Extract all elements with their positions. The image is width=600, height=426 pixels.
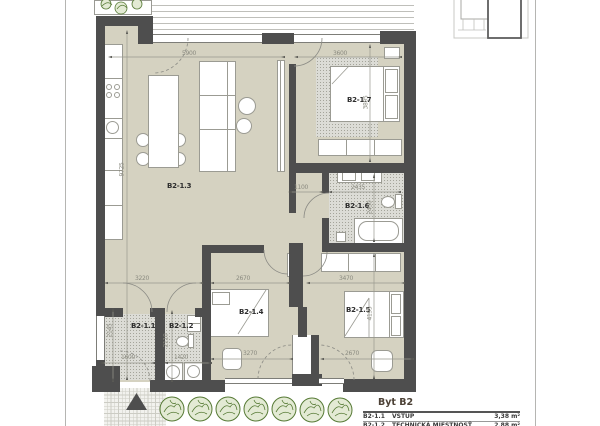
legend-row-name: TECHNICKÁ MIESTNOSŤ — [392, 422, 472, 426]
dim-label: 3470 — [339, 275, 353, 282]
dim-label: 2670 — [345, 350, 359, 357]
dim-label: 5900 — [182, 50, 196, 57]
garden-trees — [160, 397, 352, 422]
room-label-technical: B2-1.2 — [169, 322, 193, 330]
door-arc-technical — [167, 283, 196, 312]
door-arc-garden-mid-dashed — [258, 345, 292, 379]
dim-label: 2435 — [351, 184, 365, 191]
legend-row-area: 2,88 m² — [470, 422, 520, 426]
key-plan-highlighted-unit — [488, 0, 521, 38]
dim-label: 1600 — [121, 354, 135, 361]
tree-icon — [216, 397, 240, 421]
dim-label: 9725 — [119, 159, 126, 181]
legend-row-code: B2-1.2 — [363, 422, 385, 426]
floor-plan-sheet: B2-1.3 B2-1.7 B2-1.6 B2-1.1 B2-1.2 B2-1.… — [0, 0, 600, 426]
tree-icon — [328, 398, 352, 422]
room-label-entry: B2-1.1 — [131, 322, 155, 330]
tree-icon — [244, 397, 268, 421]
dim-label: 2110 — [163, 330, 170, 352]
key-plan — [454, 0, 528, 38]
dim-label: 1420 — [174, 354, 188, 361]
tree-icon — [300, 398, 324, 422]
door-arc-bathroom — [304, 193, 329, 218]
dim-label: 3270 — [243, 350, 257, 357]
room-label-living: B2-1.3 — [167, 182, 191, 190]
dim-label: 2450 — [367, 197, 374, 219]
dim-label: 3220 — [135, 275, 149, 282]
tree-icon — [188, 397, 212, 421]
tree-icon — [272, 397, 296, 421]
dim-label: 2670 — [236, 275, 250, 282]
tree-icon — [160, 397, 184, 421]
door-arc-bedroom-top — [294, 38, 322, 66]
door-arc-bedroom-mid — [264, 250, 288, 274]
planter-plants — [101, 0, 142, 14]
dim-label: 3805 — [363, 92, 370, 114]
dim-label: 3600 — [333, 50, 347, 57]
legend-row-name: VSTUP — [392, 413, 414, 420]
dim-label: 4195 — [367, 303, 374, 325]
door-arc-bedroom-right — [303, 252, 327, 276]
plan-overlay — [0, 0, 600, 426]
entrance-arrow — [126, 393, 147, 410]
dim-label: 2145 — [107, 320, 114, 342]
room-label-bedroom-mid: B2-1.4 — [239, 308, 263, 316]
legend-title: Byt B2 — [378, 397, 413, 408]
legend-row-area: 3,38 m² — [470, 413, 520, 420]
dim-label: 1100 — [294, 184, 308, 191]
legend-row-code: B2-1.1 — [363, 413, 385, 420]
